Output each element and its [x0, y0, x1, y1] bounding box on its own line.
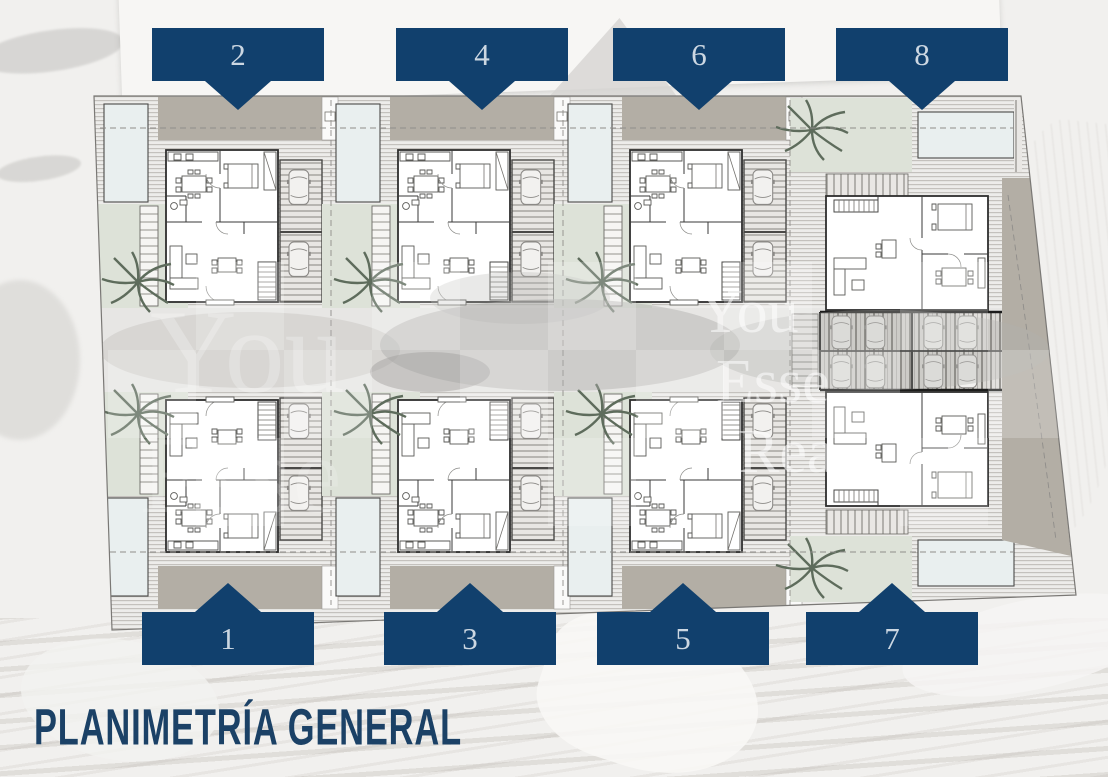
watermark-text: You — [698, 278, 799, 346]
plot-number: 8 — [914, 39, 930, 70]
plot-number: 6 — [691, 39, 707, 70]
tag-pointer-icon — [650, 583, 716, 612]
plot-number: 1 — [220, 623, 236, 654]
plot-tag-8[interactable]: 8 — [836, 28, 1008, 110]
tag-pointer-icon — [195, 583, 261, 612]
plot-tag-3[interactable]: 3 — [384, 583, 556, 665]
plot-tag-4[interactable]: 4 — [396, 28, 568, 110]
watermark-text: Esse — [716, 348, 830, 416]
page-title: PLANIMETRÍA GENERAL — [34, 698, 462, 757]
plot-number: 3 — [462, 623, 478, 654]
plot-number: 7 — [884, 623, 900, 654]
tag-pointer-icon — [437, 583, 503, 612]
tag-pointer-icon — [666, 81, 732, 110]
watermark-text-large: You — [150, 285, 345, 418]
tag-pointer-icon — [889, 81, 955, 110]
plot-tag-6[interactable]: 6 — [613, 28, 785, 110]
tag-pointer-icon — [205, 81, 271, 110]
plot-tag-5[interactable]: 5 — [597, 583, 769, 665]
plot-number: 5 — [675, 623, 691, 654]
plot-number: 2 — [230, 39, 246, 70]
plot-tag-1[interactable]: 1 — [142, 583, 314, 665]
plot-tag-2[interactable]: 2 — [152, 28, 324, 110]
watermark-text: Rea — [738, 418, 834, 486]
plot-number: 4 — [474, 39, 490, 70]
tag-pointer-icon — [859, 583, 925, 612]
plot-tag-7[interactable]: 7 — [806, 583, 978, 665]
watermark-text-large: Esse — [140, 414, 342, 536]
tag-pointer-icon — [449, 81, 515, 110]
screenshot-stage: You Esse You Esse Rea 2 4 6 8 1 3 5 7 — [0, 0, 1108, 777]
